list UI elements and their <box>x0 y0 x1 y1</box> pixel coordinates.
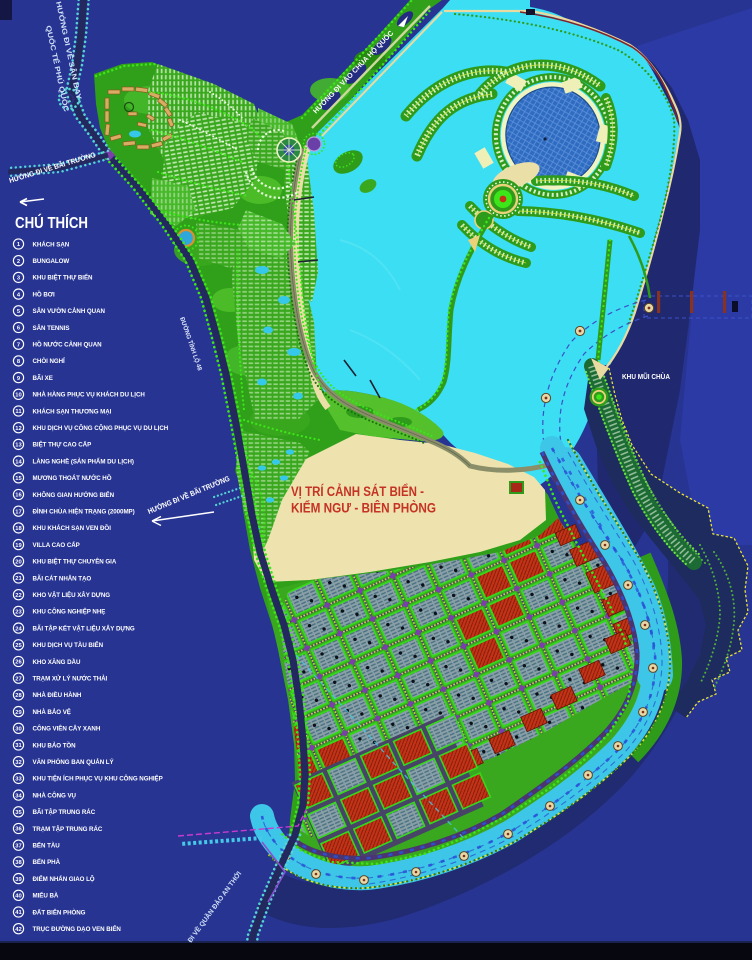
svg-text:29: 29 <box>15 710 22 716</box>
svg-text:11: 11 <box>15 409 22 415</box>
svg-text:SÂN TENNIS: SÂN TENNIS <box>33 325 70 332</box>
svg-text:KHU BIỆT THỰ BIỂN: KHU BIỆT THỰ BIỂN <box>33 274 94 282</box>
svg-text:37: 37 <box>15 843 21 849</box>
svg-text:24: 24 <box>15 626 22 632</box>
svg-text:BIỆT THỰ CAO CẤP: BIỆT THỰ CAO CẤP <box>33 441 92 449</box>
svg-text:28: 28 <box>15 693 22 699</box>
svg-text:39: 39 <box>15 877 22 883</box>
svg-text:42: 42 <box>15 927 21 933</box>
svg-text:25: 25 <box>15 643 22 649</box>
svg-text:ĐIỂM NHẤN GIAO LỘ: ĐIỂM NHẤN GIAO LỘ <box>33 875 95 883</box>
svg-text:BÃI TẬP KẾT VẬT LIỆU XÂY DỰNG: BÃI TẬP KẾT VẬT LIỆU XÂY DỰNG <box>33 624 135 632</box>
svg-text:KHU DỊCH VỤ CÔNG CỘNG PHỤC VỤ: KHU DỊCH VỤ CÔNG CỘNG PHỤC VỤ DU LỊCH <box>33 424 169 432</box>
svg-text:KHO XĂNG DẦU: KHO XĂNG DẦU <box>33 659 81 666</box>
svg-text:HỒ BƠI: HỒ BƠI <box>33 291 55 298</box>
svg-text:26: 26 <box>15 660 22 666</box>
svg-text:KHÁCH SẠN: KHÁCH SẠN <box>33 241 70 248</box>
svg-text:KHO VẬT LIỆU XÂY DỰNG: KHO VẬT LIỆU XÂY DỰNG <box>33 591 111 599</box>
svg-text:34: 34 <box>15 793 22 799</box>
svg-text:27: 27 <box>15 676 21 682</box>
svg-text:15: 15 <box>15 476 22 482</box>
svg-text:19: 19 <box>15 543 22 549</box>
svg-text:7: 7 <box>17 342 20 348</box>
svg-text:NHÀ ĐIỀU HÀNH: NHÀ ĐIỀU HÀNH <box>33 692 82 699</box>
svg-text:16: 16 <box>15 493 22 499</box>
svg-text:17: 17 <box>15 509 21 515</box>
svg-text:SÂN VƯỜN CẢNH QUAN: SÂN VƯỜN CẢNH QUAN <box>33 307 106 315</box>
svg-text:NHÀ BẢO VỆ: NHÀ BẢO VỆ <box>33 708 71 716</box>
svg-text:CÔNG VIÊN CÂY XANH: CÔNG VIÊN CÂY XANH <box>33 725 101 733</box>
svg-text:KHU TIỆN ÍCH PHỤC VỤ KHU CÔNG: KHU TIỆN ÍCH PHỤC VỤ KHU CÔNG NGHIỆP <box>33 775 163 783</box>
svg-text:20: 20 <box>15 560 21 566</box>
svg-text:22: 22 <box>15 593 21 599</box>
svg-text:BẾN PHÀ: BẾN PHÀ <box>33 859 61 866</box>
svg-text:BÃI CÁT NHÂN TẠO: BÃI CÁT NHÂN TẠO <box>33 575 92 582</box>
svg-text:VILLA CAO CẤP: VILLA CAO CẤP <box>33 542 80 549</box>
svg-text:23: 23 <box>15 610 22 616</box>
svg-text:MIẾU BÀ: MIẾU BÀ <box>33 893 59 900</box>
svg-text:BẾN TÀU: BẾN TÀU <box>33 843 61 850</box>
svg-text:CHÚ THÍCH: CHÚ THÍCH <box>15 214 88 232</box>
svg-text:TRẠM TẬP TRUNG RÁC: TRẠM TẬP TRUNG RÁC <box>33 826 103 833</box>
svg-text:21: 21 <box>15 576 22 582</box>
svg-text:32: 32 <box>15 760 21 766</box>
svg-text:KIỂM NGƯ - BIÊN PHÒNG: KIỂM NGƯ - BIÊN PHÒNG <box>291 501 436 516</box>
svg-text:VỊ TRÍ CẢNH SÁT BIỂN -: VỊ TRÍ CẢNH SÁT BIỂN - <box>291 484 424 499</box>
svg-text:KHU CÔNG NGHIỆP NHẸ: KHU CÔNG NGHIỆP NHẸ <box>33 608 106 616</box>
svg-text:40: 40 <box>15 894 21 900</box>
svg-text:2: 2 <box>17 259 20 265</box>
svg-text:10: 10 <box>15 393 21 399</box>
svg-text:36: 36 <box>15 827 22 833</box>
svg-text:NHÀ CÔNG VỤ: NHÀ CÔNG VỤ <box>33 791 77 799</box>
svg-text:CHÒI NGHỈ: CHÒI NGHỈ <box>33 357 66 365</box>
svg-text:KHU MŨI CHÙA: KHU MŨI CHÙA <box>622 372 670 381</box>
svg-text:30: 30 <box>15 727 21 733</box>
svg-text:BUNGALOW: BUNGALOW <box>33 258 70 265</box>
svg-text:33: 33 <box>15 777 22 783</box>
svg-text:12: 12 <box>15 426 21 432</box>
svg-text:KHÁCH SẠN THƯƠNG MẠI: KHÁCH SẠN THƯƠNG MẠI <box>33 408 112 415</box>
svg-text:ĐÌNH CHÙA HIỆN TRẠNG (2000MP): ĐÌNH CHÙA HIỆN TRẠNG (2000MP) <box>33 508 135 516</box>
svg-text:14: 14 <box>15 459 22 465</box>
svg-text:TRỤC ĐƯỜNG DẠO VEN BIỂN: TRỤC ĐƯỜNG DẠO VEN BIỂN <box>33 925 122 933</box>
svg-text:BÃI XE: BÃI XE <box>33 375 53 382</box>
svg-text:ĐẤT BIÊN PHÒNG: ĐẤT BIÊN PHÒNG <box>33 908 86 916</box>
svg-text:TRẠM XỬ LÝ NƯỚC THẢI: TRẠM XỬ LÝ NƯỚC THẢI <box>33 675 108 683</box>
svg-text:KHU KHÁCH SẠN VEN ĐỒI: KHU KHÁCH SẠN VEN ĐỒI <box>33 525 112 532</box>
svg-text:MƯƠNG THOÁT NƯỚC HỒ: MƯƠNG THOÁT NƯỚC HỒ <box>33 474 112 482</box>
svg-text:BÃI TẬP TRUNG RÁC: BÃI TẬP TRUNG RÁC <box>33 809 96 816</box>
svg-text:KHU BẢO TỒN: KHU BẢO TỒN <box>33 742 77 749</box>
svg-text:KHÔNG GIAN HƯỚNG BIỂN: KHÔNG GIAN HƯỚNG BIỂN <box>33 491 115 499</box>
svg-text:41: 41 <box>15 910 22 916</box>
svg-text:VĂN PHÒNG BAN QUẢN LÝ: VĂN PHÒNG BAN QUẢN LÝ <box>33 758 115 766</box>
svg-text:13: 13 <box>15 443 22 449</box>
svg-text:HỒ NƯỚC CẢNH QUAN: HỒ NƯỚC CẢNH QUAN <box>33 341 103 349</box>
svg-text:31: 31 <box>15 743 22 749</box>
svg-text:KHU DỊCH VỤ TÀU BIỂN: KHU DỊCH VỤ TÀU BIỂN <box>33 642 104 649</box>
svg-text:38: 38 <box>15 860 22 866</box>
svg-text:35: 35 <box>15 810 22 816</box>
svg-text:NHÀ HÀNG PHỤC VỤ KHÁCH DU LỊCH: NHÀ HÀNG PHỤC VỤ KHÁCH DU LỊCH <box>33 392 146 399</box>
svg-text:KHU BIỆT THỰ CHUYÊN GIA: KHU BIỆT THỰ CHUYÊN GIA <box>33 558 117 566</box>
svg-text:LÀNG NGHỀ (SẢN PHẨM DU LỊCH): LÀNG NGHỀ (SẢN PHẨM DU LỊCH) <box>33 458 134 465</box>
svg-text:18: 18 <box>15 526 22 532</box>
